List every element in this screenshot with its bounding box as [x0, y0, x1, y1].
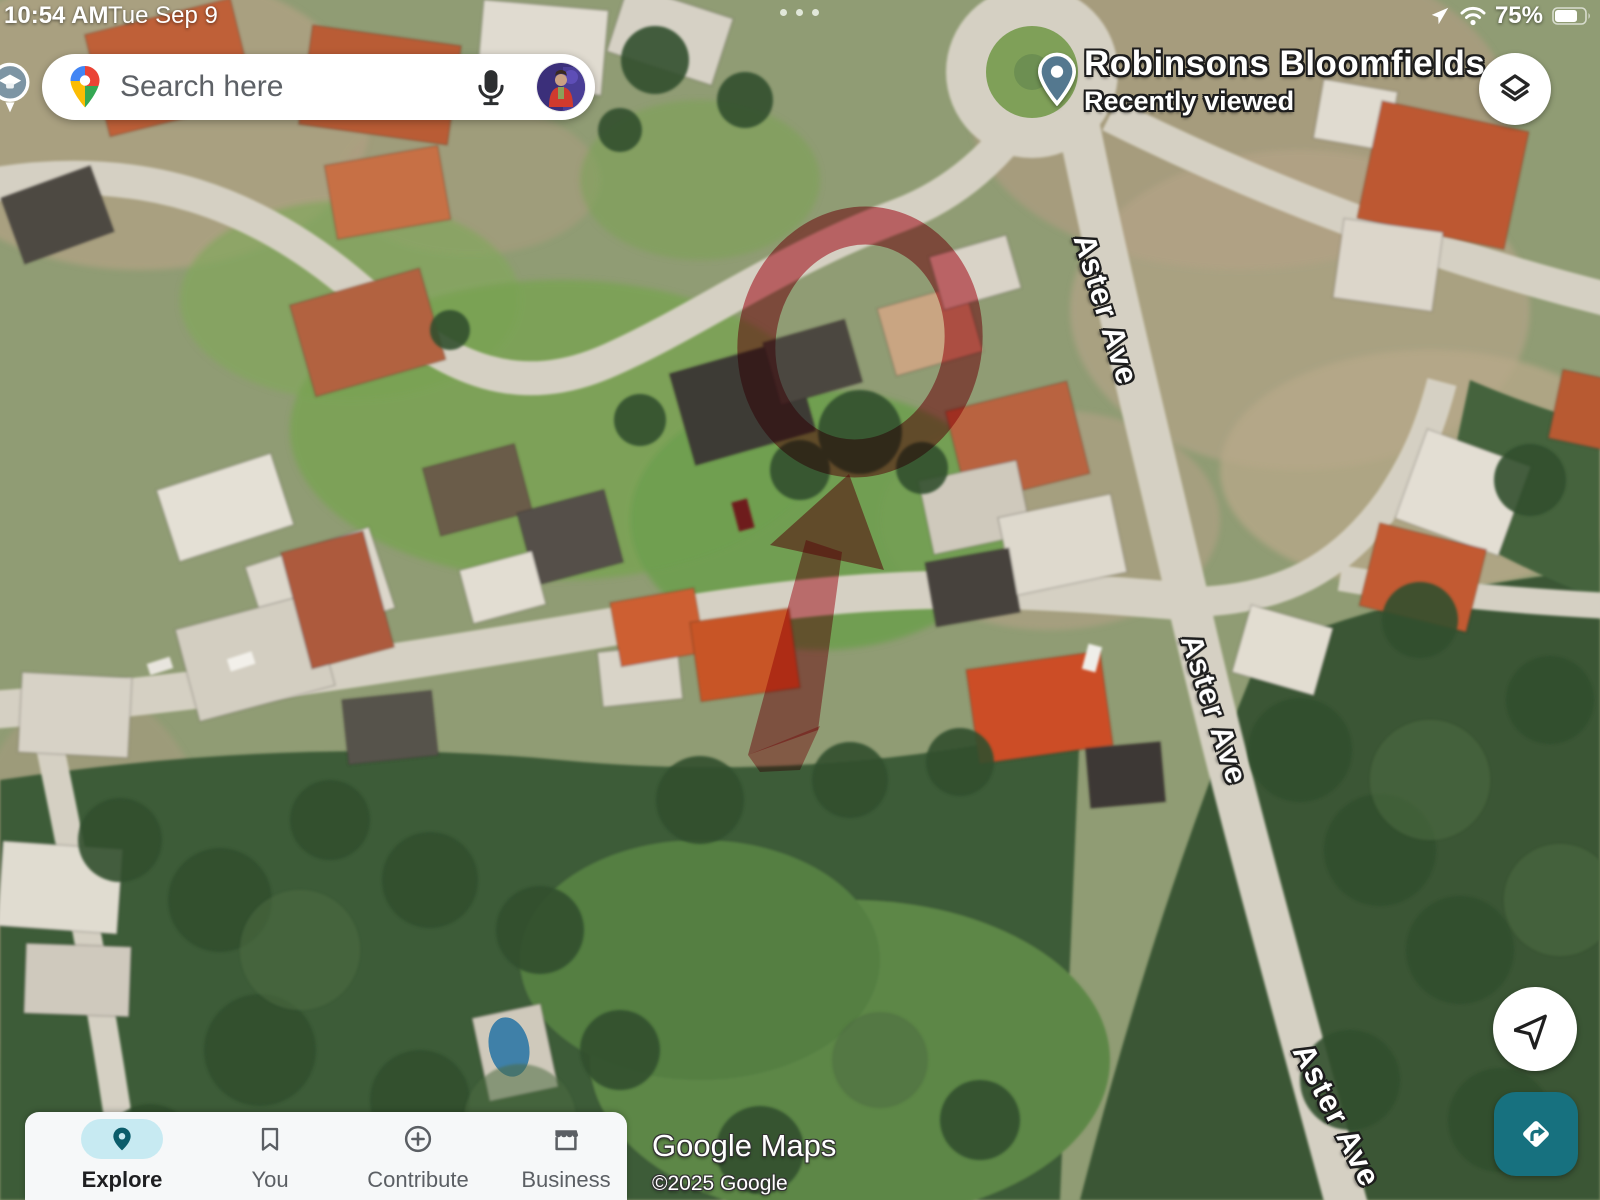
recently-viewed-pin-icon[interactable] [1036, 52, 1078, 106]
directions-icon [1513, 1111, 1559, 1157]
tab-contribute[interactable]: Contribute [343, 1118, 493, 1198]
add-circle-icon [403, 1124, 433, 1154]
my-location-button[interactable] [1493, 987, 1577, 1071]
poi-label-subtitle: Recently viewed [1084, 86, 1294, 117]
copyright-text: ©2025 Google [652, 1172, 788, 1196]
wifi-icon [1460, 6, 1486, 26]
tab-contribute-label: Contribute [343, 1167, 493, 1193]
explore-pin-icon [109, 1126, 135, 1152]
tab-you-label: You [195, 1167, 345, 1193]
school-poi-marker-icon[interactable] [0, 60, 34, 118]
tab-you[interactable]: You [195, 1118, 345, 1198]
multitasking-dots-icon [780, 9, 819, 16]
layers-button[interactable] [1479, 53, 1551, 125]
tab-business[interactable]: Business [491, 1118, 641, 1198]
navigation-arrow-icon [1514, 1008, 1556, 1050]
battery-percent: 75% [1495, 2, 1543, 30]
google-maps-app: Robinsons Bloomfields Recently viewed As… [0, 0, 1600, 1200]
layers-icon [1496, 70, 1534, 108]
battery-icon [1552, 6, 1592, 26]
user-avatar[interactable] [537, 63, 585, 111]
poi-label-title[interactable]: Robinsons Bloomfields [1084, 44, 1485, 84]
search-bar[interactable]: Search here [42, 54, 595, 120]
explore-active-pill [81, 1119, 163, 1159]
directions-button[interactable] [1494, 1092, 1578, 1176]
clock-date: Tue Sep 9 [108, 2, 218, 30]
bookmark-icon [256, 1125, 284, 1153]
tab-business-label: Business [491, 1167, 641, 1193]
storefront-icon [551, 1124, 581, 1154]
bottom-navigation: Explore You Contribute [25, 1112, 627, 1200]
satellite-map[interactable] [0, 0, 1600, 1200]
tab-explore[interactable]: Explore [47, 1118, 197, 1198]
google-maps-watermark: Google Maps [652, 1128, 836, 1164]
microphone-icon[interactable] [471, 67, 511, 107]
search-input[interactable]: Search here [120, 70, 471, 104]
tab-explore-label: Explore [47, 1167, 197, 1193]
google-maps-pin-logo-icon [68, 65, 102, 109]
status-bar: 10:54 AM Tue Sep 9 75% [0, 0, 1600, 32]
location-arrow-icon [1429, 5, 1451, 27]
clock-time: 10:54 AM [4, 2, 108, 30]
